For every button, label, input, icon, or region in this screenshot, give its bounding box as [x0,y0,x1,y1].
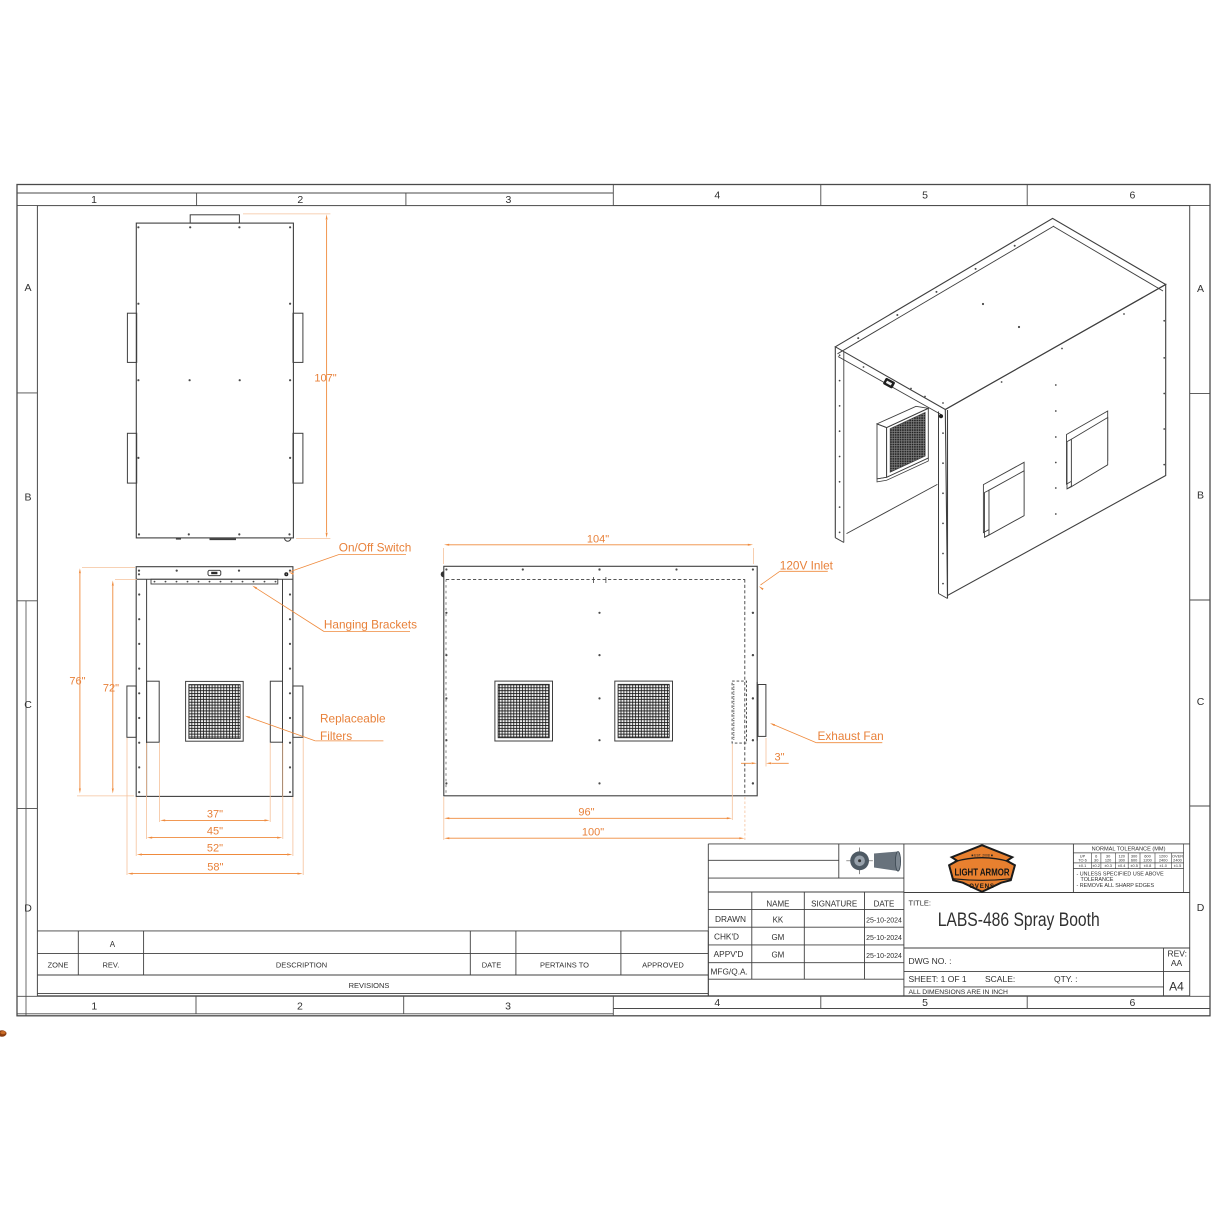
svg-text:25-10-2024: 25-10-2024 [866,935,902,942]
svg-text:MFG/Q.A.: MFG/Q.A. [711,967,748,977]
svg-text:5: 5 [922,997,928,1009]
svg-text:4: 4 [714,997,720,1009]
svg-text:±0.4: ±0.4 [1118,863,1126,868]
svg-text:GM: GM [771,951,784,960]
svg-text:96": 96" [578,807,594,819]
svg-text:■ EST. 2008 ■: ■ EST. 2008 ■ [971,854,993,858]
svg-text:B: B [1197,489,1204,501]
svg-text:76": 76" [69,676,85,688]
svg-text:±1.5: ±1.5 [1174,863,1182,868]
svg-text:±0.2: ±0.2 [1092,863,1100,868]
svg-text:2: 2 [297,194,303,206]
svg-text:APPV'D: APPV'D [714,949,744,959]
svg-text:TITLE:: TITLE: [909,899,932,908]
svg-text:104": 104" [587,533,609,545]
svg-text:2: 2 [297,1000,303,1012]
svg-text:CHK'D: CHK'D [714,932,739,942]
svg-text:3: 3 [505,1000,511,1012]
svg-text:58": 58" [207,862,223,874]
svg-text:DWG NO. :: DWG NO. : [909,956,952,966]
svg-text:300: 300 [1118,858,1125,863]
svg-text:SCALE:: SCALE: [985,974,1015,984]
svg-text:6: 6 [1129,189,1135,201]
svg-text:Hanging Brackets: Hanging Brackets [324,618,417,632]
svg-text:A: A [110,940,116,949]
svg-text:On/Off Switch: On/Off Switch [339,541,412,555]
svg-text:1: 1 [91,1000,97,1012]
svg-text:Exhaust Fan: Exhaust Fan [818,729,884,743]
svg-text:TO 6: TO 6 [1078,858,1087,863]
svg-text:D: D [1197,902,1205,914]
svg-text:45": 45" [207,826,223,838]
svg-text:120: 120 [1105,858,1112,863]
svg-text:REV.: REV. [102,961,119,970]
svg-text:- REMOVE ALL SHARP EDGES: - REMOVE ALL SHARP EDGES [1077,883,1155,889]
svg-text:25-10-2024: 25-10-2024 [866,918,902,925]
svg-text:DATE: DATE [874,899,895,908]
svg-text:B: B [24,492,31,504]
svg-text:DESCRIPTION: DESCRIPTION [276,961,327,970]
svg-text:1200: 1200 [1143,858,1152,863]
svg-text:D: D [24,903,32,915]
svg-text:SIGNATURE: SIGNATURE [811,899,857,908]
svg-text:GM: GM [771,933,784,942]
svg-text:LIGHT ARMOR: LIGHT ARMOR [955,868,1010,879]
svg-text:3": 3" [774,752,784,764]
svg-text:A4: A4 [1169,980,1184,994]
svg-text:C: C [1197,696,1205,708]
svg-text:SHEET: 1 OF 1: SHEET: 1 OF 1 [909,974,967,984]
svg-text:107": 107" [314,373,336,385]
svg-text:APPROVED: APPROVED [642,961,684,970]
svg-text:Replaceable: Replaceable [320,712,386,726]
svg-text:KK: KK [773,915,784,924]
svg-text:REV:: REV: [1168,949,1188,959]
svg-text:A: A [1197,283,1204,295]
svg-text:QTY. :: QTY. : [1054,974,1077,984]
svg-text:4: 4 [714,189,720,201]
svg-text:600: 600 [1131,858,1138,863]
svg-text:PERTAINS TO: PERTAINS TO [540,961,589,970]
svg-text:6: 6 [1129,997,1135,1009]
svg-text:52": 52" [207,843,223,855]
svg-text:DATE: DATE [482,961,501,970]
svg-text:±0.5: ±0.5 [1130,863,1138,868]
svg-text:DRAWN: DRAWN [715,914,746,924]
svg-text:LABS-486 Spray Booth: LABS-486 Spray Booth [938,910,1100,931]
svg-text:±0.1: ±0.1 [1079,863,1087,868]
svg-text:25-10-2024: 25-10-2024 [866,953,902,960]
svg-text:100": 100" [582,826,604,838]
svg-text:120V Inlet: 120V Inlet [780,559,834,573]
svg-text:2400: 2400 [1159,858,1168,863]
svg-text:OVENS: OVENS [969,883,995,890]
svg-text:REVISIONS: REVISIONS [349,981,390,990]
svg-text:±0.8: ±0.8 [1144,863,1152,868]
svg-text:A: A [24,282,31,294]
svg-text:C: C [24,699,32,711]
svg-text:NAME: NAME [766,899,789,908]
svg-text:ZONE: ZONE [48,961,69,970]
svg-text:72": 72" [103,683,119,695]
svg-text:AA: AA [1171,958,1183,968]
svg-text:±1.0: ±1.0 [1159,863,1167,868]
svg-text:5: 5 [922,189,928,201]
svg-text:37": 37" [207,808,223,820]
svg-text:ALL DIMENSIONS ARE IN INCH: ALL DIMENSIONS ARE IN INCH [909,989,1009,996]
svg-text:±0.3: ±0.3 [1104,863,1112,868]
svg-text:1: 1 [91,194,97,206]
svg-text:2400: 2400 [1173,858,1182,863]
svg-text:NORMAL TOLERANCE (MM): NORMAL TOLERANCE (MM) [1092,847,1166,853]
svg-text:3: 3 [505,194,511,206]
